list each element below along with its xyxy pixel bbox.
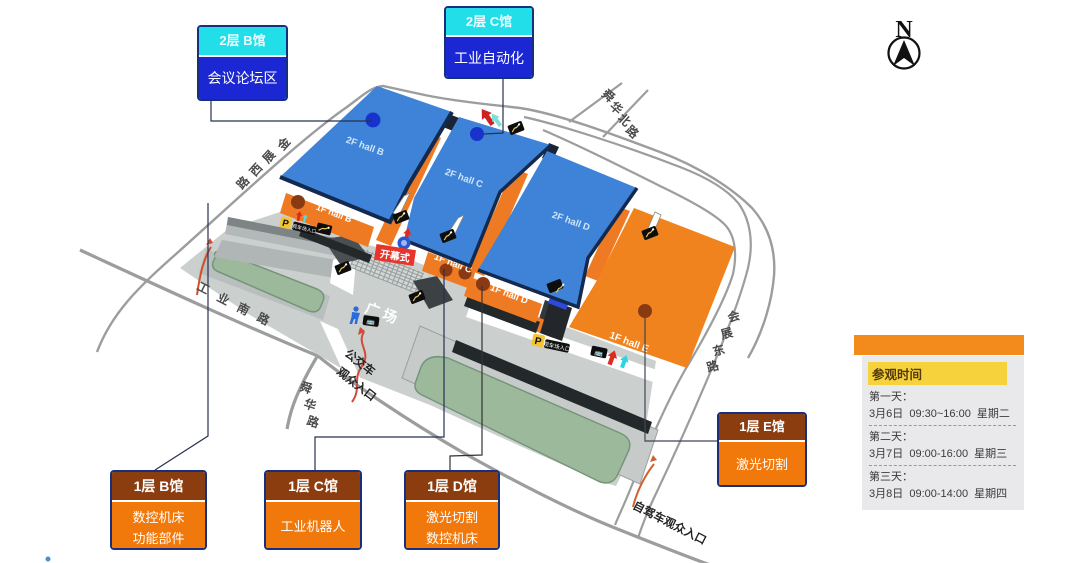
svg-text:路: 路 <box>305 413 322 431</box>
svg-text:东: 东 <box>711 341 726 359</box>
svg-text:展: 展 <box>719 325 734 342</box>
svg-text:会: 会 <box>726 307 742 325</box>
svg-text:路: 路 <box>233 172 253 192</box>
svg-text:华: 华 <box>302 396 318 414</box>
svg-text:路: 路 <box>705 357 721 375</box>
svg-text:舜: 舜 <box>298 379 314 397</box>
